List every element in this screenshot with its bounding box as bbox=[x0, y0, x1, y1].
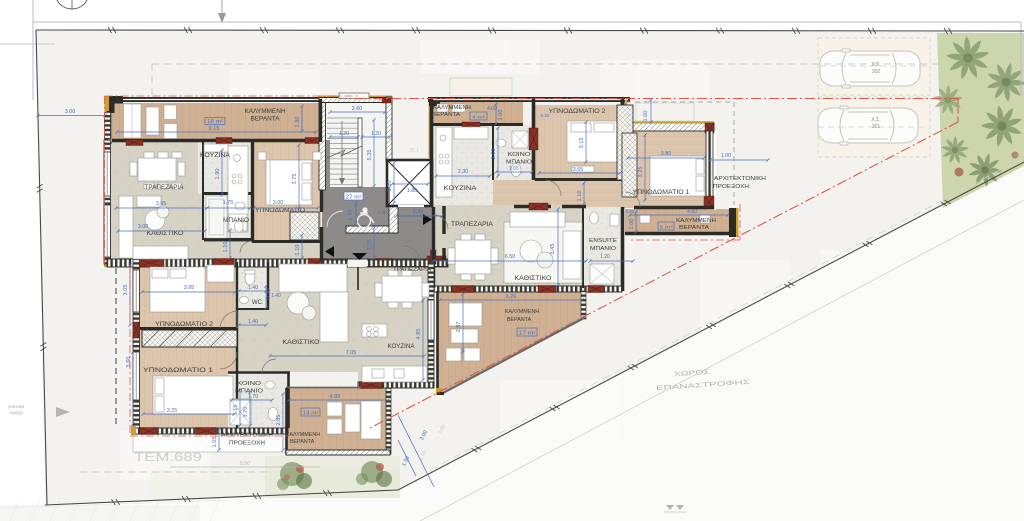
svg-text:ΜΠΑΝΙΟ: ΜΠΑΝΙΟ bbox=[590, 246, 616, 252]
svg-text:ΚΟΥΖΙΝΑ: ΚΟΥΖΙΝΑ bbox=[200, 153, 230, 159]
svg-text:3.95: 3.95 bbox=[184, 285, 195, 291]
svg-text:3.05: 3.05 bbox=[123, 285, 129, 296]
svg-text:1.10: 1.10 bbox=[295, 245, 301, 256]
svg-text:4.00: 4.00 bbox=[487, 106, 497, 112]
svg-text:1.75: 1.75 bbox=[223, 200, 234, 206]
svg-text:0.20: 0.20 bbox=[541, 113, 550, 118]
svg-text:3.00: 3.00 bbox=[138, 224, 149, 230]
svg-text:ΒΕΡΑΝΤΑ: ΒΕΡΑΝΤΑ bbox=[679, 225, 710, 231]
svg-text:1.40: 1.40 bbox=[248, 285, 258, 291]
svg-text:3.00: 3.00 bbox=[65, 109, 76, 115]
svg-text:γειτονικό: γειτονικό bbox=[8, 404, 25, 409]
svg-text:3.95: 3.95 bbox=[156, 201, 167, 207]
svg-text:ΚΑΛΥΜΜΕΝΗ: ΚΑΛΥΜΜΕΝΗ bbox=[676, 218, 716, 224]
svg-text:ΚΑΛΥΜΜΕΝΗ: ΚΑΛΥΜΜΕΝΗ bbox=[505, 309, 539, 315]
svg-text:ΚΑΛΥΜΜΕΝΗ: ΚΑΛΥΜΜΕΝΗ bbox=[433, 105, 471, 111]
svg-text:25.1: 25.1 bbox=[409, 148, 419, 154]
svg-text:5 m²: 5 m² bbox=[660, 225, 674, 231]
svg-text:ΤΡΑΠΕΖΑΡΙΑ: ΤΡΑΠΕΖΑΡΙΑ bbox=[393, 267, 431, 273]
svg-text:1.20: 1.20 bbox=[371, 131, 381, 137]
svg-text:9.15: 9.15 bbox=[209, 126, 220, 132]
svg-text:ΑΡΧΙΤΕΚΤΟΝΙΚΗ: ΑΡΧΙΤΕΚΤΟΝΙΚΗ bbox=[221, 433, 273, 439]
svg-text:3.15: 3.15 bbox=[579, 138, 585, 149]
svg-text:6.50: 6.50 bbox=[505, 254, 516, 260]
svg-text:ΒΕΡΑΝΤΑ: ΒΕΡΑΝΤΑ bbox=[432, 112, 461, 118]
svg-text:ΠΡΟΕΞΟΧΗ: ΠΡΟΕΞΟΧΗ bbox=[713, 184, 749, 190]
svg-text:18 m²: 18 m² bbox=[207, 119, 223, 125]
svg-text:1.90: 1.90 bbox=[215, 169, 221, 180]
svg-text:ΚΑΛΥΜΜΕΝΗ: ΚΑΛΥΜΜΕΝΗ bbox=[286, 432, 320, 438]
svg-text:ENSUITE: ENSUITE bbox=[589, 238, 617, 244]
svg-text:3.60: 3.60 bbox=[126, 357, 132, 368]
svg-text:1.00: 1.00 bbox=[629, 219, 635, 230]
svg-text:ΥΠΝΟΔΩΜΑΤΙΟ 2: ΥΠΝΟΔΩΜΑΤΙΟ 2 bbox=[155, 322, 214, 328]
svg-text:1.40: 1.40 bbox=[248, 319, 258, 325]
svg-text:1.10: 1.10 bbox=[223, 242, 229, 253]
svg-text:ΚΟΙΝΟ: ΚΟΙΝΟ bbox=[237, 381, 262, 387]
svg-text:1.05: 1.05 bbox=[212, 437, 218, 448]
svg-text:ΤΡΑΠΕΖΑΡΙΑ: ΤΡΑΠΕΖΑΡΙΑ bbox=[145, 185, 184, 191]
svg-text:Χ.Σ.: Χ.Σ. bbox=[871, 62, 880, 68]
svg-text:1.80: 1.80 bbox=[387, 181, 393, 192]
svg-text:0.20: 0.20 bbox=[626, 209, 635, 214]
svg-text:2.30: 2.30 bbox=[458, 169, 469, 175]
svg-text:ΥΠΝΟΔΩΜΑΤΙΟ 2: ΥΠΝΟΔΩΜΑΤΙΟ 2 bbox=[549, 109, 607, 115]
svg-text:1.65: 1.65 bbox=[509, 166, 519, 172]
svg-text:ΜΠΑΝΙΟ: ΜΠΑΝΙΟ bbox=[223, 218, 249, 224]
svg-text:3.00: 3.00 bbox=[273, 200, 284, 206]
svg-text:4.95: 4.95 bbox=[416, 329, 422, 340]
svg-text:ΚΟΙΝΟ: ΚΟΙΝΟ bbox=[508, 152, 532, 158]
svg-text:ΤΡΑΠΕΖΑΡΙΑ: ΤΡΑΠΕΖΑΡΙΑ bbox=[451, 222, 493, 228]
svg-text:2.05: 2.05 bbox=[491, 149, 497, 160]
svg-text:27 m²: 27 m² bbox=[346, 195, 362, 201]
svg-text:1.90: 1.90 bbox=[295, 117, 301, 128]
svg-text:2.85: 2.85 bbox=[276, 415, 282, 426]
svg-text:3.70: 3.70 bbox=[243, 407, 249, 418]
svg-text:3.75: 3.75 bbox=[292, 174, 298, 185]
svg-text:3.25: 3.25 bbox=[638, 167, 644, 178]
svg-text:1.20: 1.20 bbox=[339, 131, 349, 137]
svg-text:ΜΠΑΝΙΟ: ΜΠΑΝΙΟ bbox=[506, 160, 533, 166]
svg-text:4.89: 4.89 bbox=[330, 394, 341, 400]
svg-text:17 m²: 17 m² bbox=[519, 331, 536, 337]
svg-text:ΚΑΛΥΜΜΕΝΗ: ΚΑΛΥΜΜΕΝΗ bbox=[245, 108, 286, 115]
svg-text:3.45: 3.45 bbox=[550, 244, 556, 255]
svg-text:1.00: 1.00 bbox=[498, 110, 504, 121]
svg-text:4.60: 4.60 bbox=[687, 209, 697, 215]
svg-text:1.80: 1.80 bbox=[407, 188, 418, 194]
svg-text:1.70: 1.70 bbox=[248, 394, 258, 400]
svg-text:ΒΕΡΑΝΤΑ: ΒΕΡΑΝΤΑ bbox=[290, 439, 315, 445]
svg-text:1.00: 1.00 bbox=[643, 111, 649, 122]
svg-text:4 m²: 4 m² bbox=[472, 115, 486, 121]
svg-text:1.20: 1.20 bbox=[600, 254, 610, 260]
svg-text:ΤΕΜ.689: ΤΕΜ.689 bbox=[134, 452, 202, 464]
svg-text:2.60: 2.60 bbox=[352, 106, 363, 112]
svg-text:1.70: 1.70 bbox=[348, 210, 354, 221]
svg-text:ΚΑΘΙΣΤΙΚΟ: ΚΑΘΙΣΤΙΚΟ bbox=[283, 340, 320, 346]
svg-text:ΒΕΡΑΝΤΑ: ΒΕΡΑΝΤΑ bbox=[507, 317, 532, 323]
svg-text:5.50: 5.50 bbox=[240, 461, 250, 467]
svg-text:7.05: 7.05 bbox=[346, 350, 357, 356]
svg-text:2.87: 2.87 bbox=[456, 322, 462, 333]
svg-text:ΚΟΥΖΙΝΑ: ΚΟΥΖΙΝΑ bbox=[444, 186, 477, 192]
svg-text:τεμάχιο: τεμάχιο bbox=[9, 410, 23, 415]
svg-text:ΑΡΧΙΤΕΚΤΟΝΙΚΗ: ΑΡΧΙΤΕΚΤΟΝΙΚΗ bbox=[714, 176, 766, 182]
svg-text:ΠΡΟΕΞΟΧΗ: ΠΡΟΕΞΟΧΗ bbox=[229, 441, 265, 447]
svg-text:301: 301 bbox=[872, 124, 881, 130]
svg-text:5.35: 5.35 bbox=[367, 150, 373, 161]
svg-text:302: 302 bbox=[872, 69, 881, 75]
svg-text:3.25: 3.25 bbox=[167, 408, 178, 414]
svg-text:0.20: 0.20 bbox=[378, 210, 387, 215]
svg-text:1.00: 1.00 bbox=[721, 153, 731, 159]
svg-text:1.40: 1.40 bbox=[271, 293, 281, 299]
svg-text:1.10: 1.10 bbox=[577, 191, 583, 202]
svg-text:ΒΕΡΑΝΤΑ: ΒΕΡΑΝΤΑ bbox=[251, 116, 281, 123]
svg-text:ΚΟΥΖΙΝΑ: ΚΟΥΖΙΝΑ bbox=[388, 344, 415, 350]
svg-text:WC: WC bbox=[252, 300, 263, 306]
svg-text:3.65: 3.65 bbox=[573, 167, 584, 173]
svg-text:ΚΑΘΙΣΤΙΚΟ: ΚΑΘΙΣΤΙΚΟ bbox=[515, 276, 552, 282]
svg-text:1.50: 1.50 bbox=[413, 209, 424, 215]
svg-text:Χ.Σ.: Χ.Σ. bbox=[871, 117, 880, 123]
svg-text:6.26: 6.26 bbox=[506, 294, 517, 300]
svg-text:14 m²: 14 m² bbox=[303, 411, 319, 417]
svg-text:1.25: 1.25 bbox=[367, 240, 373, 251]
svg-text:1.15: 1.15 bbox=[233, 405, 239, 416]
svg-text:3.80: 3.80 bbox=[661, 151, 672, 157]
svg-text:ΥΠΝΟΔΩΜΑΤΙΟ 1: ΥΠΝΟΔΩΜΑΤΙΟ 1 bbox=[633, 190, 691, 196]
svg-text:ΚΑΘΙΣΤΙΚΟ: ΚΑΘΙΣΤΙΚΟ bbox=[147, 231, 184, 237]
svg-text:ΥΠΝΟΔΩΜΑΤΙΟ 1: ΥΠΝΟΔΩΜΑΤΙΟ 1 bbox=[143, 368, 214, 374]
